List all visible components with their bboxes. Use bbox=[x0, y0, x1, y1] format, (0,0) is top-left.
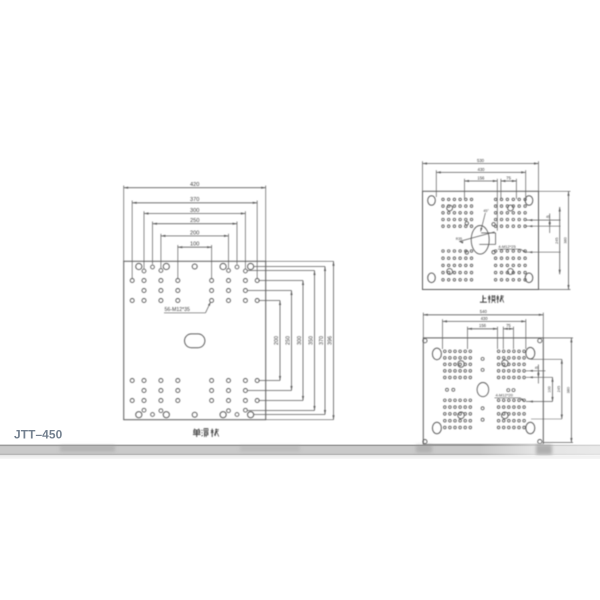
svg-text:75: 75 bbox=[506, 323, 511, 328]
svg-text:245: 245 bbox=[555, 238, 559, 244]
svg-text:4-M12*25: 4-M12*25 bbox=[498, 244, 516, 249]
svg-text:75: 75 bbox=[506, 175, 511, 180]
svg-text:156: 156 bbox=[479, 323, 487, 328]
svg-text:370: 370 bbox=[190, 197, 199, 203]
svg-text:245: 245 bbox=[557, 386, 561, 392]
svg-text:300: 300 bbox=[190, 208, 199, 214]
svg-text:250: 250 bbox=[286, 336, 292, 345]
svg-text:200: 200 bbox=[190, 230, 199, 236]
svg-text:100: 100 bbox=[548, 386, 552, 392]
svg-text:200: 200 bbox=[274, 336, 280, 345]
svg-text:380: 380 bbox=[567, 387, 571, 393]
svg-text:300: 300 bbox=[297, 336, 303, 345]
svg-text:396: 396 bbox=[328, 336, 334, 345]
svg-text:56-M12*35: 56-M12*35 bbox=[165, 307, 190, 313]
svg-text:530: 530 bbox=[477, 158, 485, 163]
svg-text:4-M12*20: 4-M12*20 bbox=[496, 392, 514, 397]
svg-text:370: 370 bbox=[319, 336, 325, 345]
svg-text:380: 380 bbox=[564, 237, 568, 243]
svg-text:430: 430 bbox=[478, 167, 486, 172]
svg-text:350: 350 bbox=[309, 336, 315, 345]
svg-text:156: 156 bbox=[477, 175, 485, 180]
svg-text:540: 540 bbox=[480, 309, 488, 314]
svg-text:45°: 45° bbox=[483, 209, 489, 213]
svg-text:45: 45 bbox=[546, 215, 550, 219]
svg-text:250: 250 bbox=[190, 218, 199, 224]
svg-text:45: 45 bbox=[535, 366, 539, 370]
svg-text:R35: R35 bbox=[456, 237, 462, 241]
svg-text:430: 430 bbox=[481, 316, 489, 321]
svg-text:420: 420 bbox=[190, 182, 199, 188]
svg-text:JTT–450: JTT–450 bbox=[14, 427, 63, 441]
svg-text:100: 100 bbox=[190, 242, 199, 248]
